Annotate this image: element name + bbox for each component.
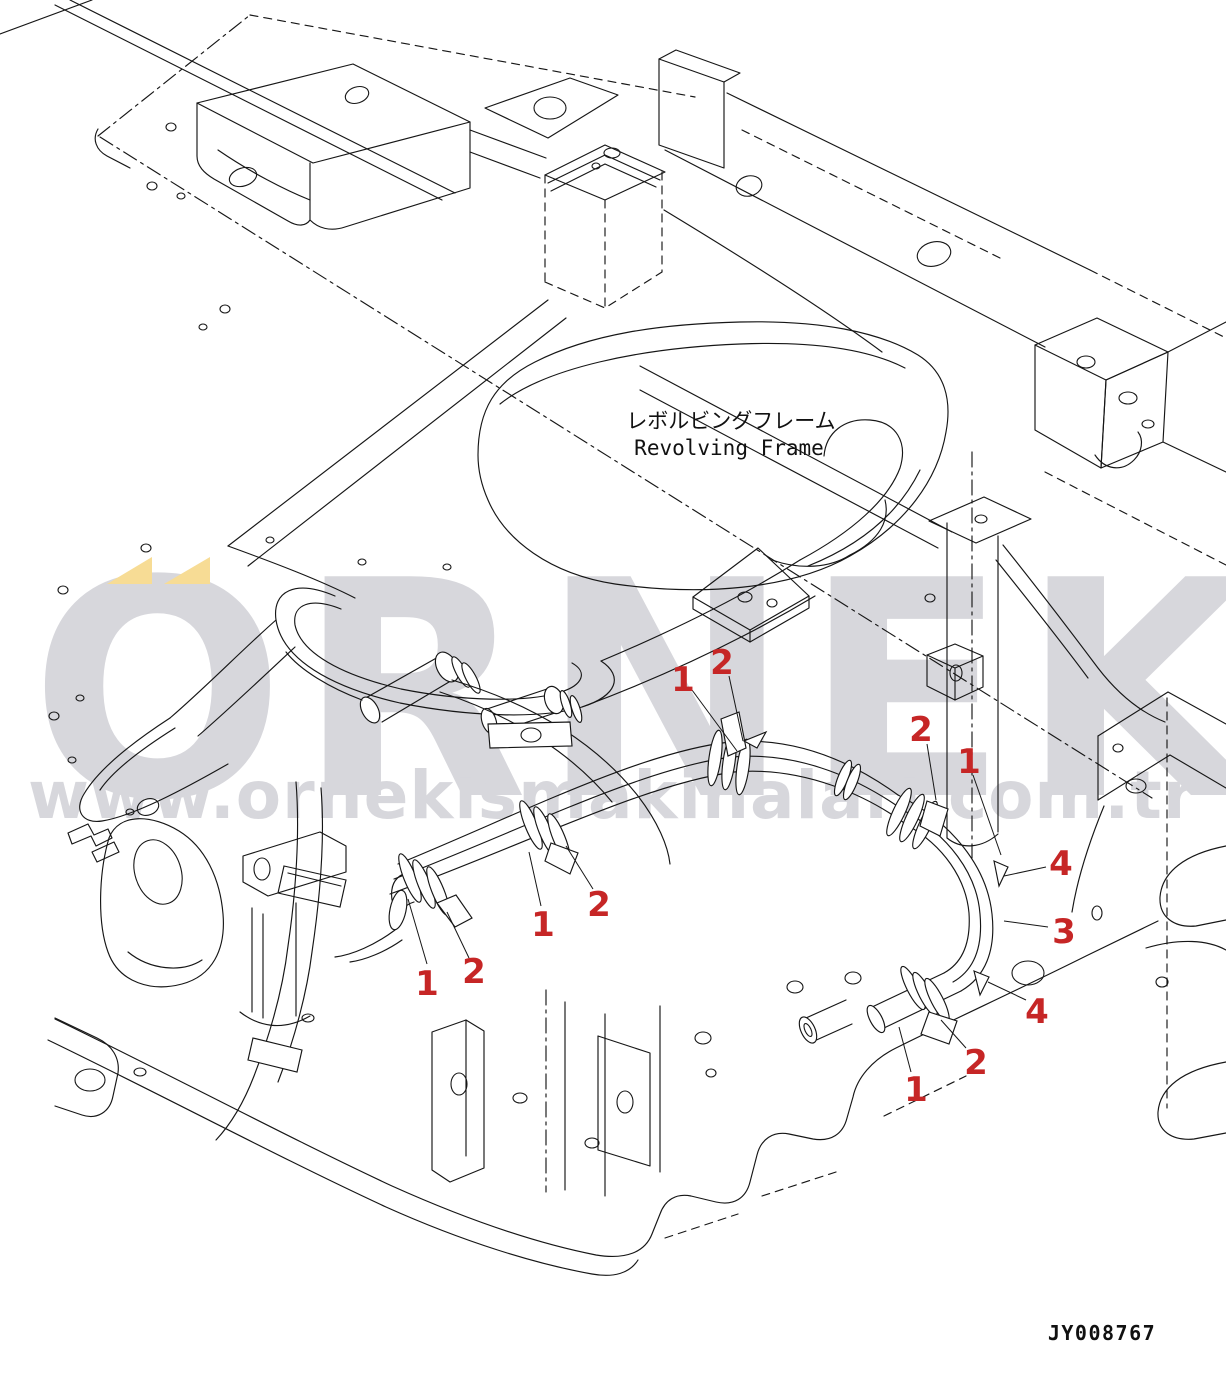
callout-label: 1 xyxy=(904,1070,928,1110)
callout-label: 1 xyxy=(531,905,555,945)
frame-label-jp: レボルビングフレーム xyxy=(626,409,835,433)
watermark: ORNEK www.ornekismakinalari.com.tr xyxy=(28,517,1226,866)
callout-label: 2 xyxy=(909,710,933,750)
callout-label: 2 xyxy=(964,1043,988,1083)
callout-label: 1 xyxy=(957,742,981,782)
frame-label-en: Revolving Frame xyxy=(634,436,824,460)
callout-label: 3 xyxy=(1052,912,1076,952)
parts-diagram-page: ORNEK www.ornekismakinalari.com.tr xyxy=(0,0,1226,1384)
callout-label: 2 xyxy=(587,885,611,925)
watermark-url-text: www.ornekismakinalari.com.tr xyxy=(28,757,1196,834)
callout-label: 1 xyxy=(415,964,439,1004)
hose-clip xyxy=(974,971,989,995)
hose-clamp xyxy=(897,964,957,1044)
callout-label: 1 xyxy=(671,660,695,700)
part-code: JY008767 xyxy=(1048,1321,1156,1345)
callout-label: 4 xyxy=(1049,844,1073,884)
revolving-frame-diagram: ORNEK www.ornekismakinalari.com.tr xyxy=(0,0,1226,1384)
callout-label: 2 xyxy=(710,643,734,683)
callout-label: 2 xyxy=(462,952,486,992)
callout-label: 4 xyxy=(1025,992,1049,1032)
